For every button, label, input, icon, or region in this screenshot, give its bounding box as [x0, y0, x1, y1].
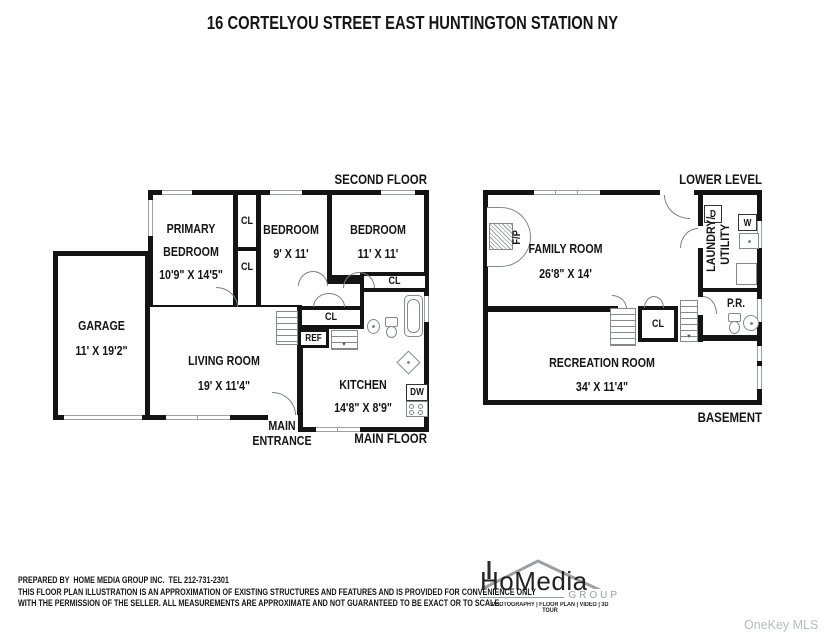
- room-name: LIVING ROOM: [163, 348, 284, 373]
- fridge-label: REF: [301, 334, 326, 344]
- window: [534, 190, 600, 195]
- window: [166, 415, 230, 420]
- stairs-arrow-icon: ▼: [341, 342, 347, 348]
- living-room-label: LIVING ROOM 19' X 11'4": [163, 348, 284, 398]
- bathtub-icon: [404, 295, 423, 337]
- disclaimer-line: WITH THE PERMISSION OF THE SELLER. ALL M…: [18, 599, 501, 608]
- main-floor-label: MAIN FLOOR: [330, 431, 427, 445]
- disclaimer-line: THIS FLOOR PLAN ILLUSTRATION IS AN APPRO…: [18, 588, 536, 597]
- door-arc: [298, 271, 313, 286]
- lower-level-label: LOWER LEVEL: [664, 172, 762, 186]
- door-arc: [313, 293, 329, 307]
- burner-icon: [418, 404, 423, 409]
- window: [381, 190, 415, 195]
- wall: [483, 306, 618, 312]
- bedroom-middle-label: BEDROOM 9' X 11': [261, 218, 320, 266]
- window: [757, 346, 762, 361]
- watermark: OneKey MLS: [744, 618, 818, 632]
- stairs: [610, 308, 636, 346]
- window: [270, 190, 302, 195]
- sink-icon: [367, 319, 380, 334]
- laundry-line: LAUNDRY/: [704, 203, 718, 286]
- burner-icon: [418, 410, 423, 415]
- washer-tub-icon: [739, 233, 759, 249]
- window: [757, 366, 762, 389]
- room-name: BEDROOM: [261, 218, 320, 242]
- wall: [698, 335, 762, 341]
- wall: [327, 190, 332, 280]
- stairs: [276, 311, 298, 345]
- room-dims: 14'8" X 8'9": [313, 396, 413, 419]
- wall: [698, 288, 762, 292]
- family-room-label: FAMILY ROOM 26'8" X 14': [510, 236, 621, 286]
- bedroom-right-label: BEDROOM 11' X 11': [340, 218, 415, 266]
- window: [148, 200, 153, 236]
- primary-bedroom-label: PRIMARY BEDROOM 10'9" X 14'5": [154, 217, 228, 286]
- room-dims: 11' X 11': [340, 242, 415, 266]
- logo-sub-row: GROUP: [480, 590, 620, 601]
- entrance-line: ENTRANCE: [246, 433, 318, 448]
- room-dims: 11' X 19'2": [63, 338, 139, 363]
- room-name: BEDROOM: [340, 218, 415, 242]
- logo-divider: [480, 597, 564, 598]
- room-name: GARAGE: [63, 313, 139, 338]
- toilet-bowl-icon: [386, 326, 397, 338]
- door-opening: [698, 226, 703, 248]
- sink-icon: [743, 315, 759, 331]
- prepared-by-line: PREPARED BY HOME MEDIA GROUP INC. TEL 21…: [18, 576, 229, 585]
- page-title: 16 CORTELYOU STREET EAST HUNTINGTON STAT…: [74, 14, 751, 32]
- window-mullion: [197, 415, 198, 420]
- window-mullion: [555, 190, 556, 195]
- kitchen-label: KITCHEN 14'8" X 8'9": [313, 373, 413, 419]
- closet-label: CL: [304, 312, 358, 323]
- toilet-bowl-icon: [729, 321, 740, 334]
- laundry-utility-label: LAUNDRY/ UTILITY: [704, 203, 734, 286]
- powder-room-label: P.R.: [718, 297, 754, 309]
- wall: [236, 247, 258, 251]
- recreation-room-label: RECREATION ROOM 34' X 11'4": [533, 351, 671, 399]
- room-dims: 34' X 11'4": [533, 375, 671, 399]
- garage-label: GARAGE 11' X 19'2": [63, 313, 139, 363]
- entrance-line: MAIN: [246, 418, 318, 433]
- room-dims: 19' X 11'4": [163, 373, 284, 398]
- main-entrance-label: MAIN ENTRANCE: [246, 418, 318, 448]
- window-mullion: [577, 190, 578, 195]
- closet-label: CL: [366, 276, 423, 287]
- door-arc: [313, 271, 328, 286]
- wall: [698, 190, 703, 342]
- laundry-line: UTILITY: [718, 203, 732, 286]
- closet-label: CL: [642, 319, 675, 330]
- basement-label: BASEMENT: [664, 410, 762, 424]
- garage-door: [64, 415, 142, 420]
- room-name: KITCHEN: [313, 373, 413, 396]
- room-name: RECREATION ROOM: [533, 351, 671, 375]
- stairs-arrow-icon: ▼: [686, 334, 692, 340]
- second-floor-label: SECOND FLOOR: [329, 172, 427, 186]
- room-dims: 9' X 11': [261, 242, 320, 266]
- room-dims: 26'8" X 14': [510, 261, 621, 286]
- utility-box-icon: [736, 263, 757, 285]
- closet-label: CL: [237, 262, 257, 273]
- room-name: PRIMARY BEDROOM: [154, 217, 228, 263]
- room-dims: 10'9" X 14'5": [154, 263, 228, 286]
- window: [424, 296, 429, 322]
- floor-plan-canvas: 16 CORTELYOU STREET EAST HUNTINGTON STAT…: [0, 0, 825, 637]
- room-name: FAMILY ROOM: [510, 236, 621, 261]
- closet-label: CL: [237, 216, 257, 227]
- logo-sub: GROUP: [568, 590, 620, 601]
- washer-label: W: [740, 219, 756, 229]
- logo-tagline: PHOTOGRAPHY | FLOOR PLAN | VIDEO | 3D TO…: [484, 602, 616, 614]
- window: [162, 190, 192, 195]
- door-arc: [329, 293, 345, 307]
